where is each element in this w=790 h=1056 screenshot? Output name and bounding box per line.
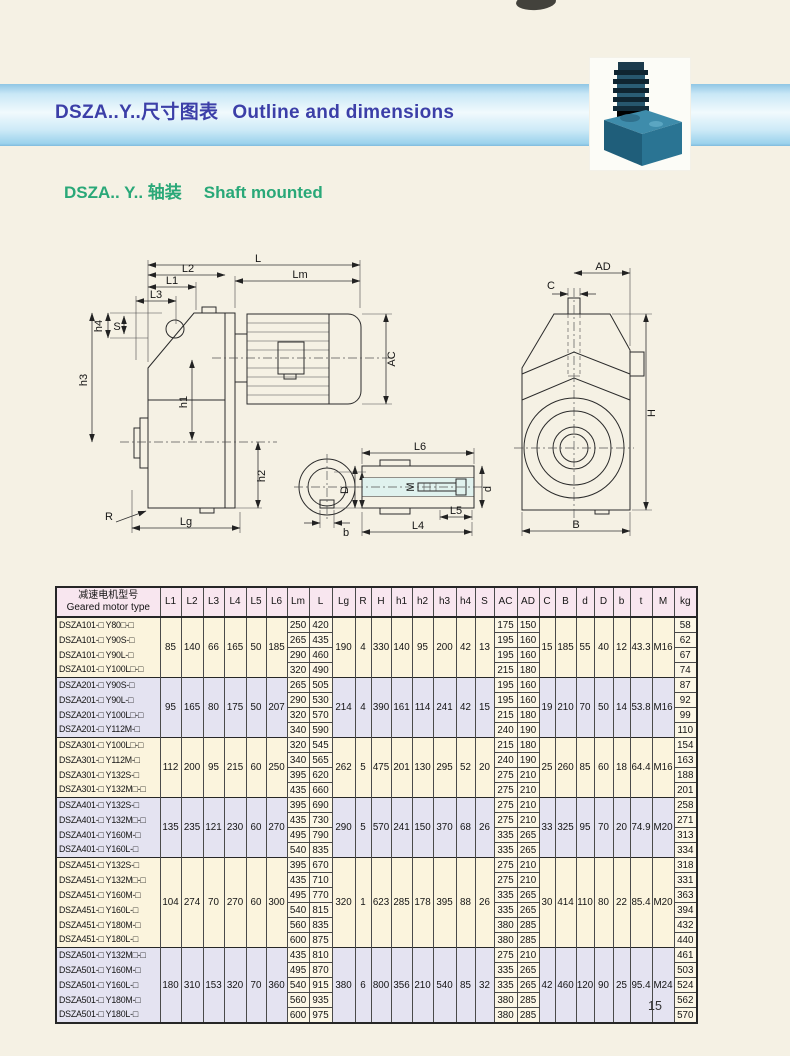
table-cell: 210 (517, 948, 539, 963)
table-cell: 4 (355, 617, 371, 678)
table-cell: 195 (494, 693, 517, 708)
table-cell: 285 (391, 858, 412, 948)
dim-label-h1: h1 (178, 396, 190, 408)
table-cell: 210 (517, 783, 539, 798)
dim-label-B: B (572, 519, 579, 531)
table-cell: DSZA401-□ Y160L-□ (56, 843, 160, 858)
table-cell: DSZA451-□ Y132M□-□ (56, 873, 160, 888)
column-header-M: M (652, 587, 674, 617)
table-cell: 114 (412, 678, 433, 738)
table-cell: 85 (576, 738, 594, 798)
table-cell: 68 (456, 798, 475, 858)
table-cell: 15 (475, 678, 494, 738)
table-cell: 935 (309, 993, 332, 1008)
table-cell: 490 (309, 663, 332, 678)
table-cell: DSZA501-□ Y180M-□ (56, 993, 160, 1008)
column-header-C: C (539, 587, 555, 617)
table-cell: 540 (287, 903, 309, 918)
table-cell: 210 (517, 873, 539, 888)
table-cell: 26 (475, 858, 494, 948)
table-cell: 235 (181, 798, 203, 858)
table-cell: 258 (674, 798, 697, 813)
table-cell: 180 (517, 663, 539, 678)
table-cell: 67 (674, 648, 697, 663)
table-cell: 250 (266, 738, 287, 798)
table-cell: 660 (309, 783, 332, 798)
dim-label-L5: L5 (450, 505, 462, 517)
table-cell: 20 (613, 798, 630, 858)
column-header-L6: L6 (266, 587, 287, 617)
table-cell: 130 (412, 738, 433, 798)
table-cell: 62 (674, 633, 697, 648)
table-cell: 190 (517, 753, 539, 768)
table-cell: 265 (517, 978, 539, 993)
table-cell: 390 (371, 678, 391, 738)
dim-label-AC: AC (386, 351, 398, 366)
table-cell: DSZA101-□ Y80□-□ (56, 617, 160, 633)
table-cell: 12 (613, 617, 630, 678)
table-cell: 161 (391, 678, 412, 738)
table-cell: 210 (412, 948, 433, 1024)
table-cell: 461 (674, 948, 697, 963)
table-cell: 160 (517, 648, 539, 663)
table-cell: 620 (309, 768, 332, 783)
table-cell: 380 (494, 918, 517, 933)
dimensions-table: 减速电机型号 Geared motor type L1L2L3L4L5L6LmL… (55, 586, 698, 1024)
table-cell: 190 (517, 723, 539, 738)
table-cell: 560 (287, 918, 309, 933)
table-cell: 70 (246, 948, 266, 1024)
table-cell: 530 (309, 693, 332, 708)
table-cell: 140 (391, 617, 412, 678)
table-cell: 395 (287, 768, 309, 783)
table-cell: 33 (539, 798, 555, 858)
table-cell: 295 (433, 738, 456, 798)
table-cell: 88 (456, 858, 475, 948)
table-cell: 175 (224, 678, 246, 738)
table-cell: 335 (494, 978, 517, 993)
page-title-zh: DSZA..Y..尺寸图表 (55, 102, 218, 123)
table-cell: 394 (674, 903, 697, 918)
table-cell: 200 (433, 617, 456, 678)
table-cell: 730 (309, 813, 332, 828)
table-cell: 270 (224, 858, 246, 948)
table-cell: 335 (494, 903, 517, 918)
table-cell: 87 (674, 678, 697, 693)
table-cell: 265 (287, 678, 309, 693)
table-cell: 210 (517, 768, 539, 783)
scan-smudge (515, 0, 556, 11)
table-body: DSZA101-□ Y80□-□851406616550185250420190… (56, 617, 697, 1023)
table-cell: 285 (517, 933, 539, 948)
table-cell: 110 (674, 723, 697, 738)
table-cell: 25 (539, 738, 555, 798)
table-cell: 178 (412, 858, 433, 948)
catalog-page: DSZA..Y..尺寸图表Outline and dimensions DSZA… (0, 0, 790, 1056)
table-cell: 600 (287, 1008, 309, 1024)
table-cell: 80 (203, 678, 224, 738)
table-cell: M16 (652, 617, 674, 678)
section-subtitle: DSZA.. Y.. 轴装Shaft mounted (64, 178, 323, 203)
table-cell: 214 (332, 678, 355, 738)
table-cell: 560 (287, 993, 309, 1008)
table-cell: 835 (309, 843, 332, 858)
table-cell: 85 (160, 617, 181, 678)
table-cell: 110 (576, 858, 594, 948)
table-cell: DSZA401-□ Y160M-□ (56, 828, 160, 843)
column-header-L: L (309, 587, 332, 617)
table-cell: 435 (287, 813, 309, 828)
table-cell: 265 (517, 828, 539, 843)
table-cell: 495 (287, 963, 309, 978)
table-cell: 180 (517, 708, 539, 723)
table-cell: 275 (494, 798, 517, 813)
column-header-L3: L3 (203, 587, 224, 617)
column-header-h1: h1 (391, 587, 412, 617)
table-cell: M20 (652, 858, 674, 948)
table-cell: 870 (309, 963, 332, 978)
table-cell: 320 (332, 858, 355, 948)
table-cell: 150 (517, 617, 539, 633)
table-cell: 95 (576, 798, 594, 858)
shaft-sleeve-drawing: M L6 D d L5 L4 (339, 441, 494, 536)
table-cell: 60 (246, 858, 266, 948)
table-cell: 50 (246, 617, 266, 678)
table-cell: DSZA501-□ Y160M-□ (56, 963, 160, 978)
table-cell: DSZA451-□ Y180M-□ (56, 918, 160, 933)
table-cell: 815 (309, 903, 332, 918)
table-cell: 66 (203, 617, 224, 678)
table-cell: 380 (494, 1008, 517, 1024)
table-cell: 160 (517, 678, 539, 693)
table-cell: DSZA301-□ Y132S-□ (56, 768, 160, 783)
dim-label-H: H (646, 409, 658, 417)
column-header-L1: L1 (160, 587, 181, 617)
table-cell: 53.8 (630, 678, 652, 738)
table-cell: 265 (517, 903, 539, 918)
table-cell: 310 (181, 948, 203, 1024)
table-row: DSZA451-□ Y132S-□10427470270603003956703… (56, 858, 697, 873)
table-cell: 175 (494, 617, 517, 633)
table-cell: 290 (287, 693, 309, 708)
table-cell: 600 (287, 933, 309, 948)
table-cell: 414 (555, 858, 576, 948)
table-cell: 25 (613, 948, 630, 1024)
column-header-R: R (355, 587, 371, 617)
table-cell: 70 (576, 678, 594, 738)
table-cell: 195 (494, 678, 517, 693)
table-cell: 335 (494, 828, 517, 843)
column-header-AD: AD (517, 587, 539, 617)
table-cell: 30 (539, 858, 555, 948)
dim-label-L6: L6 (414, 441, 426, 453)
table-cell: 262 (332, 738, 355, 798)
table-cell: 435 (287, 783, 309, 798)
column-header-d: d (576, 587, 594, 617)
table-cell: 55 (576, 617, 594, 678)
table-cell: 64.4 (630, 738, 652, 798)
table-cell: 290 (332, 798, 355, 858)
table-cell: 420 (309, 617, 332, 633)
table-cell: DSZA501-□ Y180L-□ (56, 1008, 160, 1024)
table-cell: 790 (309, 828, 332, 843)
column-header-B: B (555, 587, 576, 617)
table-cell: 60 (246, 738, 266, 798)
table-cell: 240 (494, 753, 517, 768)
table-cell: 505 (309, 678, 332, 693)
dim-label-h3: h3 (78, 374, 90, 386)
table-cell: 185 (266, 617, 287, 678)
table-cell: 915 (309, 978, 332, 993)
table-cell: 271 (674, 813, 697, 828)
column-header-AC: AC (494, 587, 517, 617)
table-cell: 331 (674, 873, 697, 888)
table-cell: 540 (287, 978, 309, 993)
table-cell: 50 (246, 678, 266, 738)
table-cell: 300 (266, 858, 287, 948)
table-cell: DSZA451-□ Y132S-□ (56, 858, 160, 873)
dim-label-D: D (339, 486, 351, 494)
table-cell: 215 (494, 738, 517, 753)
table-cell: 275 (494, 813, 517, 828)
table-cell: 215 (494, 663, 517, 678)
table-cell: 195 (494, 648, 517, 663)
table-cell: 230 (224, 798, 246, 858)
table-cell: 318 (674, 858, 697, 873)
dim-label-b: b (343, 527, 349, 539)
section-subtitle-en: Shaft mounted (204, 183, 323, 202)
table-cell: DSZA301-□ Y112M-□ (56, 753, 160, 768)
column-header-kg: kg (674, 587, 697, 617)
table-cell: 250 (287, 617, 309, 633)
table-cell: 265 (517, 963, 539, 978)
table-cell: 540 (287, 843, 309, 858)
table-cell: 274 (181, 858, 203, 948)
table-cell: M16 (652, 678, 674, 738)
table-cell: 201 (674, 783, 697, 798)
table-cell: DSZA451-□ Y180L-□ (56, 933, 160, 948)
table-cell: 58 (674, 617, 697, 633)
table-cell: 52 (456, 738, 475, 798)
dim-label-L2: L2 (182, 263, 194, 275)
dim-label-L: L (255, 253, 261, 265)
table-cell: DSZA501-□ Y132M□-□ (56, 948, 160, 963)
table-cell: 215 (494, 708, 517, 723)
table-cell: 340 (287, 753, 309, 768)
column-header-h4: h4 (456, 587, 475, 617)
table-cell: 875 (309, 933, 332, 948)
table-cell: 395 (287, 858, 309, 873)
table-cell: 562 (674, 993, 697, 1008)
product-photo (590, 58, 690, 170)
table-cell: 80 (594, 858, 613, 948)
table-cell: 150 (412, 798, 433, 858)
table-cell: 356 (391, 948, 412, 1024)
table-cell: 275 (494, 768, 517, 783)
table-cell: 6 (355, 948, 371, 1024)
page-title-en: Outline and dimensions (232, 102, 454, 123)
table-row: DSZA101-□ Y80□-□851406616550185250420190… (56, 617, 697, 633)
table-cell: 435 (309, 633, 332, 648)
table-cell: 335 (494, 843, 517, 858)
table-cell: 32 (475, 948, 494, 1024)
table-cell: 165 (181, 678, 203, 738)
table-cell: 42 (456, 617, 475, 678)
dim-label-C: C (547, 280, 555, 292)
table-cell: 19 (539, 678, 555, 738)
table-cell: 330 (371, 617, 391, 678)
table-cell: 370 (433, 798, 456, 858)
table-cell: 1 (355, 858, 371, 948)
gearmotor-photo-graphic (590, 58, 690, 170)
column-header-L2: L2 (181, 587, 203, 617)
dim-label-Lg: Lg (180, 516, 192, 528)
table-cell: 285 (517, 918, 539, 933)
column-header-L4: L4 (224, 587, 246, 617)
table-cell: 74.9 (630, 798, 652, 858)
table-cell: 153 (203, 948, 224, 1024)
table-cell: 112 (160, 738, 181, 798)
table-cell: 285 (517, 1008, 539, 1024)
dim-label-L3: L3 (150, 289, 162, 301)
table-cell: 270 (266, 798, 287, 858)
table-row: DSZA401-□ Y132S-□13523512123060270395690… (56, 798, 697, 813)
table-cell: 320 (287, 663, 309, 678)
table-cell: 240 (494, 723, 517, 738)
table-cell: 60 (246, 798, 266, 858)
table-cell: 335 (494, 888, 517, 903)
column-header-S: S (475, 587, 494, 617)
table-cell: 690 (309, 798, 332, 813)
dim-label-M: M (405, 482, 417, 491)
table-cell: 460 (555, 948, 576, 1024)
page-title: DSZA..Y..尺寸图表Outline and dimensions (55, 97, 454, 124)
table-cell: 770 (309, 888, 332, 903)
table-cell: 545 (309, 738, 332, 753)
table-cell: 43.3 (630, 617, 652, 678)
table-cell: DSZA101-□ Y90S-□ (56, 633, 160, 648)
dim-label-S: S (113, 321, 120, 333)
column-header-t: t (630, 587, 652, 617)
table-cell: 42 (456, 678, 475, 738)
table-cell: 26 (475, 798, 494, 858)
table-cell: 475 (371, 738, 391, 798)
table-cell: DSZA201-□ Y90L-□ (56, 693, 160, 708)
table-cell: 800 (371, 948, 391, 1024)
table-cell: 4 (355, 678, 371, 738)
table-cell: 432 (674, 918, 697, 933)
table-cell: 380 (494, 993, 517, 1008)
table-cell: DSZA201-□ Y112M-□ (56, 723, 160, 738)
table-cell: 135 (160, 798, 181, 858)
table-cell: 540 (433, 948, 456, 1024)
table-cell: DSZA451-□ Y160L-□ (56, 903, 160, 918)
table-cell: 275 (494, 873, 517, 888)
table-cell: 163 (674, 753, 697, 768)
table-cell: 623 (371, 858, 391, 948)
table-cell: 200 (181, 738, 203, 798)
dim-label-d: d (482, 486, 494, 492)
dim-label-Lm: Lm (292, 269, 307, 281)
table-cell: 60 (594, 738, 613, 798)
table-cell: 92 (674, 693, 697, 708)
table-cell: 440 (674, 933, 697, 948)
table-cell: 435 (287, 873, 309, 888)
table-cell: 241 (433, 678, 456, 738)
table-cell: 180 (160, 948, 181, 1024)
dimension-drawings: L Lm L2 L1 L3 h4 S h3 h1 h2 (62, 250, 702, 566)
table-cell: 265 (287, 633, 309, 648)
table-cell: 20 (475, 738, 494, 798)
table-cell: 360 (266, 948, 287, 1024)
table-cell: DSZA301-□ Y132M□-□ (56, 783, 160, 798)
table-cell: 70 (594, 798, 613, 858)
table-cell: 241 (391, 798, 412, 858)
column-header-L5: L5 (246, 587, 266, 617)
table-cell: 334 (674, 843, 697, 858)
table-cell: 380 (332, 948, 355, 1024)
table-cell: 570 (371, 798, 391, 858)
column-header-model: 减速电机型号 Geared motor type (56, 587, 160, 617)
table-cell: 18 (613, 738, 630, 798)
page-number: 15 (648, 999, 662, 1013)
table-cell: DSZA501-□ Y160L-□ (56, 978, 160, 993)
table-cell: 50 (594, 678, 613, 738)
table-cell: 395 (287, 798, 309, 813)
table-cell: 180 (517, 738, 539, 753)
table-cell: 320 (287, 738, 309, 753)
table-cell: 495 (287, 828, 309, 843)
column-header-model-zh: 减速电机型号 (57, 590, 160, 602)
table-cell: 15 (539, 617, 555, 678)
table-cell: 313 (674, 828, 697, 843)
table-cell: 85 (456, 948, 475, 1024)
table-cell: 380 (494, 933, 517, 948)
table-cell: 265 (517, 888, 539, 903)
dim-label-h2: h2 (256, 470, 268, 482)
table-cell: 99 (674, 708, 697, 723)
table-cell: 188 (674, 768, 697, 783)
table-cell: 195 (494, 633, 517, 648)
section-subtitle-zh: DSZA.. Y.. 轴装 (64, 183, 182, 202)
column-header-b: b (613, 587, 630, 617)
table-cell: 40 (594, 617, 613, 678)
table-row: DSZA501-□ Y132M□-□1803101533207036043581… (56, 948, 697, 963)
table-cell: M20 (652, 798, 674, 858)
table-cell: 275 (494, 858, 517, 873)
table-cell: 160 (517, 633, 539, 648)
table-cell: 340 (287, 723, 309, 738)
table-cell: 5 (355, 798, 371, 858)
table-cell: 95 (203, 738, 224, 798)
table-cell: 495 (287, 888, 309, 903)
table-cell: 13 (475, 617, 494, 678)
table-cell: 22 (613, 858, 630, 948)
table-cell: 210 (555, 678, 576, 738)
dim-label-R: R (105, 511, 113, 523)
table-cell: 460 (309, 648, 332, 663)
table-cell: 320 (287, 708, 309, 723)
table-cell: 590 (309, 723, 332, 738)
table-row: DSZA201-□ Y90S-□951658017550207265505214… (56, 678, 697, 693)
table-cell: 285 (517, 993, 539, 1008)
table-cell: 207 (266, 678, 287, 738)
table-cell: 190 (332, 617, 355, 678)
dim-label-AD: AD (595, 261, 610, 273)
front-view-drawing: AD C H B (514, 261, 658, 536)
table-cell: 14 (613, 678, 630, 738)
table-cell: 165 (224, 617, 246, 678)
